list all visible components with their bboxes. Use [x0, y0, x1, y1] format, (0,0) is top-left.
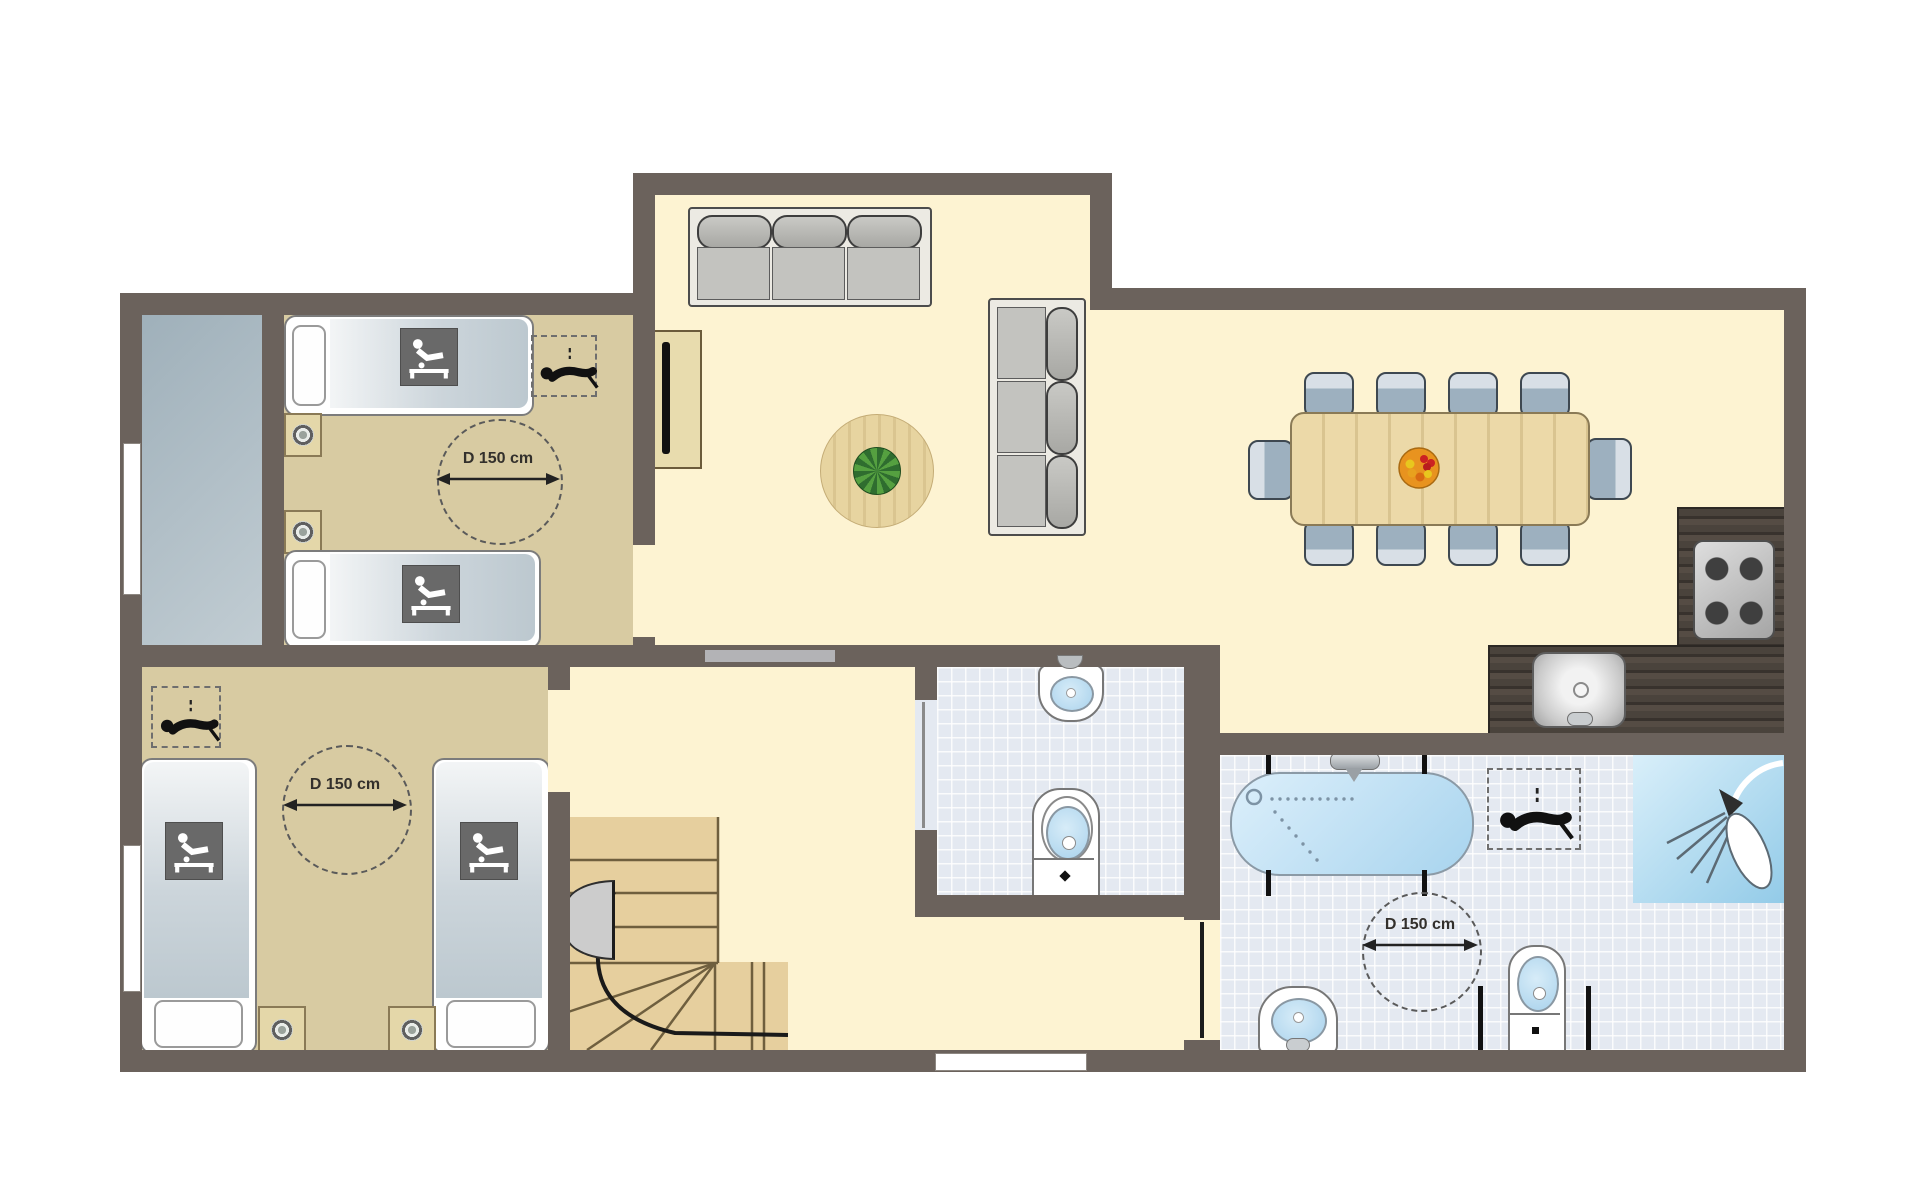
sofa-back-cushion [847, 215, 922, 249]
bathroom-toilet [1508, 945, 1566, 1054]
cooktop-burners-icon [1693, 540, 1775, 640]
patient-hoist-icon [533, 348, 611, 392]
toilet-bowl [1046, 806, 1090, 860]
sofa-back-cushion [1046, 381, 1078, 455]
partition-rail [1586, 986, 1591, 1050]
interior-window-hall [705, 650, 835, 662]
bed-pillow [292, 325, 326, 406]
knob-icon [292, 424, 314, 446]
sink-faucet-icon [1567, 712, 1593, 726]
wheelchair-bed-icon [400, 328, 458, 386]
window-terrace [123, 443, 141, 595]
hall-door [565, 880, 615, 960]
toilet-room-washbasin [1038, 664, 1104, 722]
washbasin-drain-icon [1066, 688, 1076, 698]
bed-blanket [144, 762, 249, 998]
turning-circle-label: D 150 cm [437, 450, 559, 468]
toilet-bowl [1517, 956, 1559, 1012]
toilet-door-leaf [922, 702, 925, 828]
bed-pillow [446, 1000, 536, 1048]
turning-circle-label: D 150 cm [282, 776, 408, 794]
bed [140, 758, 257, 1054]
window-bedroom-bottom [123, 845, 141, 992]
bathtub-leg [1266, 870, 1271, 896]
partition-rail [1478, 986, 1483, 1050]
wall-terrace-divider [262, 315, 284, 667]
sofa-back-cushion [1046, 455, 1078, 529]
bathroom-washbasin [1258, 986, 1338, 1054]
sofa-seat-cushion [697, 247, 770, 300]
wall-mid-horizontal [120, 645, 1206, 667]
wall-right [1784, 288, 1806, 1072]
wall-toilet-south [915, 895, 1220, 917]
nightstand [258, 1006, 306, 1054]
knob-icon [292, 521, 314, 543]
dining-table [1290, 412, 1590, 526]
wheelchair-bed-icon [402, 565, 460, 623]
sofa-back-cushion [697, 215, 772, 249]
sofa-back-cushion [772, 215, 847, 249]
toilet-drain-icon [1533, 987, 1546, 1000]
sofa-seat-cushion [997, 455, 1046, 527]
door-opening-bedroom-top [633, 545, 655, 637]
flush-button-icon [1532, 1027, 1539, 1034]
wheelchair-bed-icon [165, 822, 223, 880]
sofa-seat-cushion [997, 307, 1046, 379]
bathtub-detail [1230, 772, 1470, 872]
sink-drain-icon [1573, 682, 1589, 698]
dining-chair [1586, 438, 1632, 500]
bed [432, 758, 550, 1054]
turning-circle-arrow-icon [436, 470, 560, 488]
bed-blanket [436, 762, 542, 998]
nightstand [284, 510, 322, 554]
turning-circle-arrow-icon [283, 796, 407, 814]
tv-icon [662, 342, 670, 454]
washbasin-drain-icon [1293, 1012, 1304, 1023]
door-opening-toilet-room [915, 700, 937, 830]
bathroom-door-leaf [1200, 922, 1204, 1038]
kitchen-sink [1532, 652, 1626, 728]
wall-bathroom-north [1220, 733, 1784, 755]
toilet-room-toilet [1032, 788, 1100, 899]
shower-head-icon [1633, 755, 1784, 903]
window-bottom-wall [935, 1053, 1087, 1071]
wall-living-top [633, 173, 1112, 195]
sofa-seat-cushion [772, 247, 845, 300]
sofa-seat-cushion [997, 381, 1046, 453]
plant-icon [853, 447, 901, 495]
toilet-drain-icon [1062, 836, 1076, 850]
dining-chair [1448, 520, 1498, 566]
nightstand [388, 1006, 436, 1054]
sofa-back-cushion [1046, 307, 1078, 381]
knob-icon [401, 1019, 423, 1041]
nightstand [284, 413, 322, 457]
bed-pillow [292, 560, 326, 639]
wheelchair-bed-icon [460, 822, 518, 880]
terrace-floor [142, 315, 262, 667]
turning-circle-arrow-icon [1362, 936, 1478, 954]
patient-hoist-icon [153, 700, 233, 745]
wall-top-right-section [1090, 288, 1806, 310]
fruit-bowl-icon [1398, 447, 1440, 489]
patient-hoist-icon [1490, 788, 1590, 844]
dining-chair [1520, 520, 1570, 566]
wall-top-left-section [120, 293, 655, 315]
sofa-3-seat-vertical [988, 298, 1086, 536]
bed-pillow [154, 1000, 243, 1048]
turning-circle-label: D 150 cm [1362, 916, 1478, 934]
dining-chair [1376, 520, 1426, 566]
knob-icon [271, 1019, 293, 1041]
floor-plan: D 150 cm D 150 cm [0, 0, 1920, 1200]
dining-chair [1248, 440, 1294, 500]
dining-chair [1304, 520, 1354, 566]
door-opening-bedroom-bottom [548, 690, 570, 792]
tv-cabinet [648, 330, 702, 469]
sofa-seat-cushion [847, 247, 920, 300]
sofa-3-seat [688, 207, 932, 307]
